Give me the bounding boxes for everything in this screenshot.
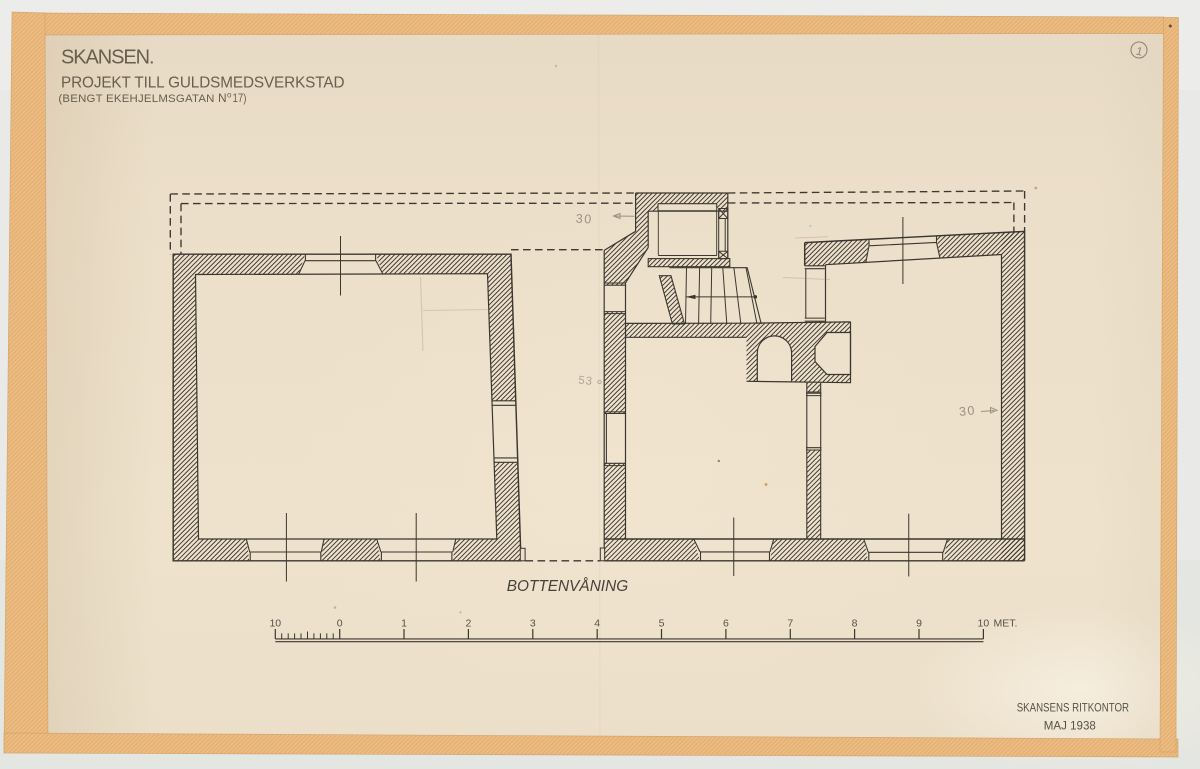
svg-text:1: 1 bbox=[401, 618, 407, 630]
svg-text:4: 4 bbox=[594, 618, 600, 630]
svg-text:17): 17) bbox=[233, 91, 247, 105]
svg-text:SKANSEN.: SKANSEN. bbox=[61, 46, 155, 68]
svg-text:53: 53 bbox=[578, 375, 594, 388]
svg-text:MAJ 1938: MAJ 1938 bbox=[1044, 719, 1096, 733]
svg-text:10: 10 bbox=[978, 618, 990, 630]
svg-text:8: 8 bbox=[852, 618, 858, 630]
svg-text:N: N bbox=[218, 91, 227, 105]
svg-text:BOTTENVÅNING: BOTTENVÅNING bbox=[507, 576, 629, 595]
svg-text:9: 9 bbox=[916, 618, 922, 630]
svg-text:2: 2 bbox=[465, 618, 471, 630]
svg-text:0: 0 bbox=[337, 618, 343, 630]
svg-text:10: 10 bbox=[269, 618, 281, 630]
svg-text:5: 5 bbox=[659, 618, 665, 630]
svg-text:PROJEKT TILL GULDSMEDSVERKSTAD: PROJEKT TILL GULDSMEDSVERKSTAD bbox=[61, 74, 345, 91]
svg-text:(BENGT EKEHJELMSGATAN: (BENGT EKEHJELMSGATAN bbox=[58, 93, 214, 105]
svg-text:7: 7 bbox=[787, 618, 793, 630]
svg-text:3: 3 bbox=[530, 618, 536, 630]
svg-text:6: 6 bbox=[723, 618, 729, 630]
svg-text:SKANSENS RITKONTOR: SKANSENS RITKONTOR bbox=[1017, 702, 1129, 715]
svg-text:MET.: MET. bbox=[994, 618, 1018, 630]
svg-text:30: 30 bbox=[958, 403, 976, 419]
svg-text:30: 30 bbox=[575, 211, 593, 226]
svg-text:o: o bbox=[227, 91, 232, 100]
